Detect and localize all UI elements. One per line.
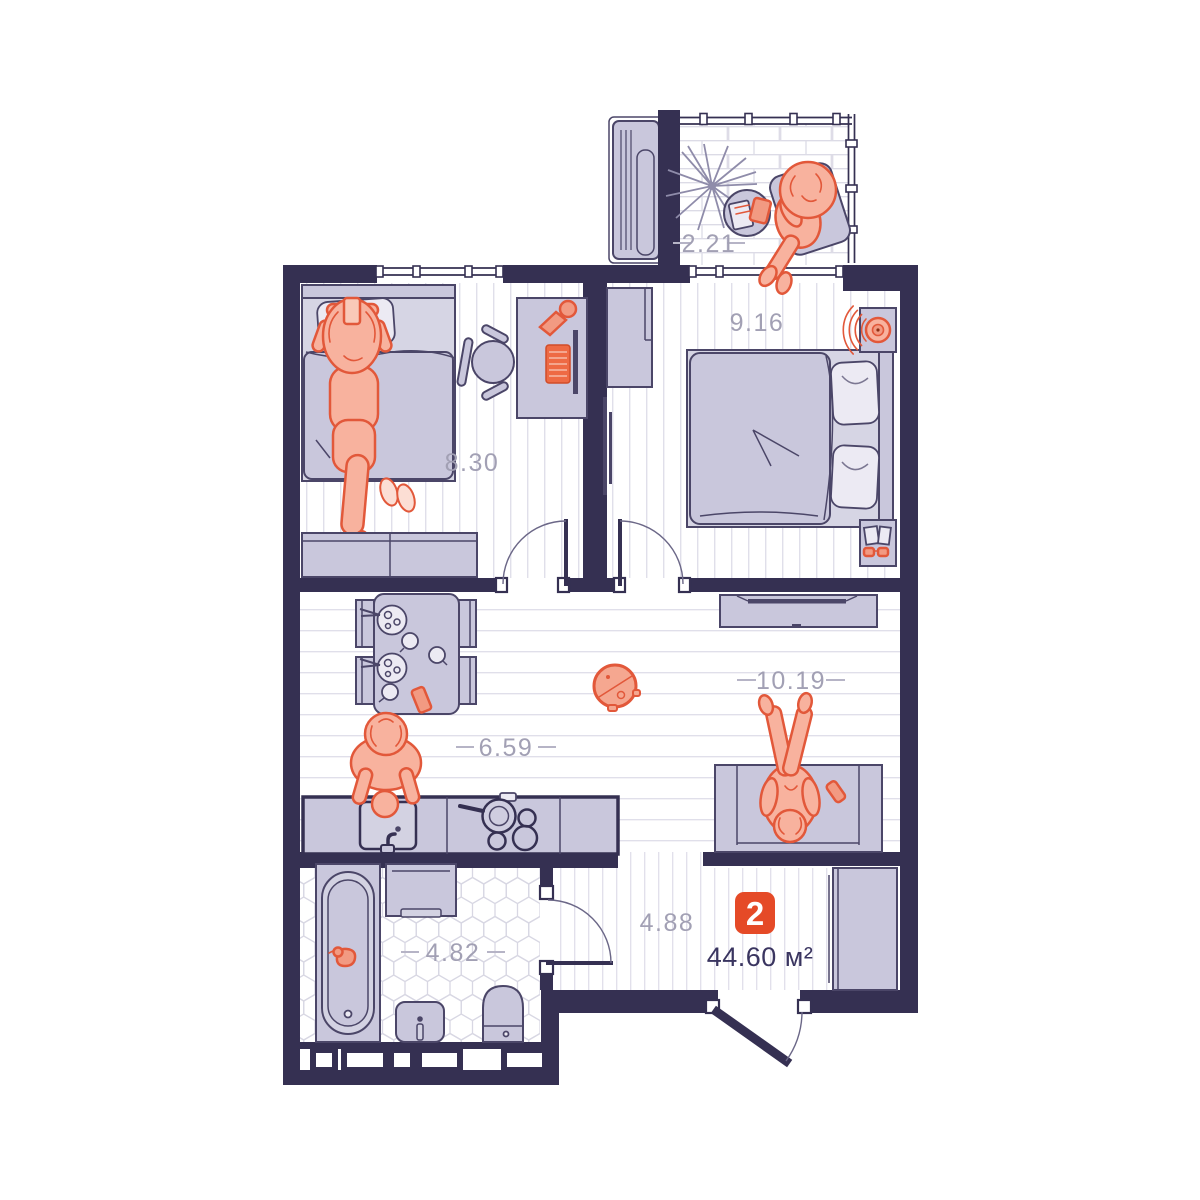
- wardrobe: [607, 288, 652, 387]
- window-bedroom-left: [376, 266, 503, 277]
- unit-number-badge: 2: [735, 892, 775, 934]
- dresser: [302, 533, 477, 577]
- double-bed: [687, 350, 893, 527]
- desk: [517, 298, 587, 418]
- room-area-label-living: 10.19: [756, 667, 826, 695]
- room-area-label-bedroom-right: 9.16: [730, 309, 785, 337]
- dining-table-set: [356, 594, 476, 714]
- room-area-label-bedroom-left: 8.30: [445, 449, 500, 477]
- room-area-label-hallway: 4.88: [640, 909, 695, 937]
- toilet: [483, 986, 523, 1042]
- frying-pan-icon: [483, 800, 516, 833]
- utility-shafts: [313, 1050, 545, 1070]
- washing-machine: [386, 864, 456, 917]
- desk-lamp-icon: [560, 301, 576, 317]
- nightstand: [860, 520, 896, 566]
- total-area-label: 44.60 м²: [707, 942, 814, 972]
- glasses-icon: [864, 548, 874, 556]
- floor-plan: 2.21 8.30 9.16 10.19 6.59 4.88 4.82 2 44…: [0, 0, 1200, 1200]
- room-area-label-kitchen: 6.59: [479, 734, 534, 762]
- floor-plan-page: 2.21 8.30 9.16 10.19 6.59 4.88 4.82 2 44…: [0, 0, 1200, 1200]
- bathroom-sink: [396, 1002, 444, 1042]
- entrance-door: [706, 1000, 811, 1061]
- unit-number: 2: [746, 895, 764, 932]
- bathtub: [316, 864, 380, 1042]
- kitchen-counter: [303, 793, 618, 854]
- room-area-label-bathroom: 4.82: [426, 939, 481, 967]
- air-conditioner: [609, 117, 663, 263]
- tv-console: [720, 595, 877, 628]
- hall-closet: [829, 868, 897, 990]
- room-area-label-balcony: 2.21: [682, 230, 737, 258]
